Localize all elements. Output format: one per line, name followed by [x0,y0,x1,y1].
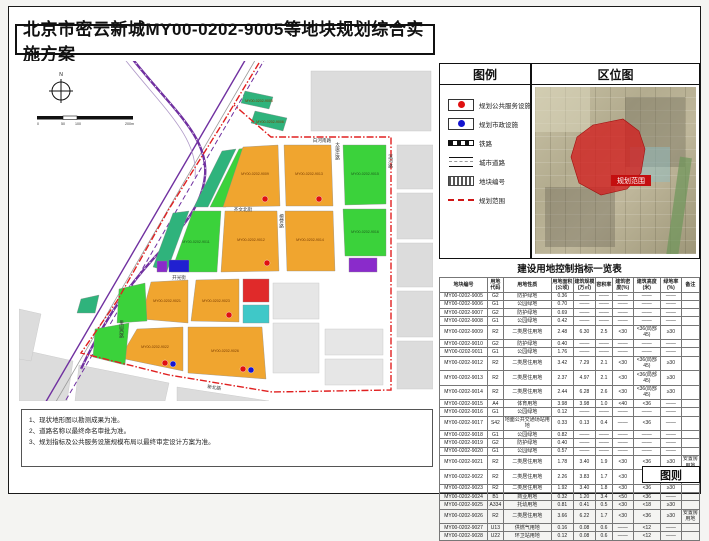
table-cell: —— [660,300,681,308]
table-cell: —— [612,292,633,300]
table-cell [681,317,699,325]
public-service-dot [316,196,322,202]
table-cell: 1.8 [595,484,612,492]
table-cell: <18 [633,501,660,509]
table-cell: 1.92 [551,484,573,492]
table-cell [681,524,699,532]
scale-tick: 100 [75,122,81,126]
table-cell: MY00-0202-9018 [440,431,488,439]
table-cell: —— [595,447,612,455]
table-cell [681,439,699,447]
table-cell: 0.36 [551,292,573,300]
table-cell: G2 [488,439,504,447]
table-row: MY00-0202-9010G2防护绿地0.40—————————— [440,340,700,348]
table-row: MY00-0202-9013R2二类居住用地2.374.972.1<30<36(… [440,371,700,386]
table-cell: 地面公共交通场站用地 [503,416,551,431]
table-cell: —— [595,300,612,308]
legend-item: 地块编号 [448,171,524,190]
plot-9025 [243,305,269,323]
table-cell: 0.70 [551,300,573,308]
table-cell: 0.33 [551,416,573,431]
public-service-dot [262,196,268,202]
table-cell: 0.40 [551,439,573,447]
table-cell: —— [633,439,660,447]
legend-item-label: 规划范围 [479,195,505,205]
table-cell: 0.40 [551,340,573,348]
table-row: MY00-0202-9009R2二类居住用地2.486.302.5<30<36(… [440,325,700,340]
table-cell: ≥30 [660,385,681,400]
table-cell: —— [573,348,595,356]
plot-label: MY00-0202-9026 [211,349,239,353]
table-cell [681,408,699,416]
compass-n-label: N [59,72,63,78]
table-cell: 0.08 [573,524,595,532]
public-service-dot [264,260,270,266]
table-cell: —— [612,431,633,439]
table-cell: —— [612,408,633,416]
legend-item: 规划市政设施 [448,114,524,133]
table-cell: —— [633,408,660,416]
table-cell: MY00-0202-9014 [440,385,488,400]
table-cell: MY00-0202-9022 [440,470,488,485]
table-cell: —— [633,309,660,317]
table-cell: —— [573,340,595,348]
table-cell: MY00-0202-9006 [440,300,488,308]
table-cell: 2.26 [551,470,573,485]
table-cell: 1.9 [595,455,612,470]
table-cell: ≥30 [660,371,681,386]
table-cell: —— [660,340,681,348]
table-cell: G2 [488,340,504,348]
table-cell: 公园绿地 [503,348,551,356]
planning-map-svg: MY00-0202-9005 MY00-0202-9006 MY00-0202-… [19,61,433,401]
indicator-table-body: MY00-0202-9005G2防护绿地0.36——————————MY00-0… [440,292,700,540]
table-cell: 二类居住用地 [503,484,551,492]
road-label: 齐文北街 [234,206,253,213]
plot-label: MY00-0202-9005 [245,99,273,103]
table-cell: 防护绿地 [503,309,551,317]
table-cell [681,309,699,317]
table-cell: <30 [612,509,633,524]
table-cell: —— [633,317,660,325]
legend-item-label: 地块编号 [479,176,505,186]
plot-label: MY00-0202-9023 [202,299,230,303]
table-cell: ≥30 [660,484,681,492]
table-cell: <30 [612,385,633,400]
legend-item: 铁路 [448,133,524,152]
plan-sheet: 北京市密云新城MY00-0202-9005等地块规划综合实施方案 [8,6,701,494]
plot-label: MY00-0202-9016 [351,230,379,234]
table-row: MY00-0202-9012R2二类居住用地3.427.292.1<30<36(… [440,356,700,371]
plot-9026 [188,327,266,379]
table-cell: 二类居住用地 [503,509,551,524]
table-cell: MY00-0202-9012 [440,356,488,371]
table-cell: 3.98 [573,400,595,408]
table-cell: 3.40 [573,484,595,492]
table-cell: ≥30 [660,509,681,524]
table-row: MY00-0202-9008G1公园绿地0.42—————————— [440,317,700,325]
table-cell [681,371,699,386]
city-road-icon [448,157,474,167]
table-cell: MY00-0202-9016 [440,408,488,416]
table-cell: —— [660,416,681,431]
table-cell: 3.98 [551,400,573,408]
table-cell: <30 [612,484,633,492]
table-cell: 1.7 [595,509,612,524]
plot-label: MY00-0202-9015 [351,172,379,176]
table-cell: R2 [488,356,504,371]
table-cell: —— [595,431,612,439]
indicator-table-header-row: 地块编号用地代码用地性质用地面积(公顷)建筑规模(万㎡)容积率建筑密度(%)建筑… [440,278,700,293]
table-cell: 3.40 [573,455,595,470]
table-cell: 2.48 [551,325,573,340]
table-cell: MY00-0202-9023 [440,484,488,492]
table-cell: 0.5 [595,501,612,509]
table-header-cell: 备注 [681,278,699,293]
plot-label: MY00-0202-9022 [141,345,169,349]
table-cell: MY00-0202-9026 [440,509,488,524]
table-cell: —— [595,348,612,356]
table-cell: 3.66 [551,509,573,524]
table-row: MY00-0202-9014R2二类居住用地2.446.282.6<30<36(… [440,385,700,400]
table-header-cell: 地块编号 [440,278,488,293]
table-cell: 二类居住用地 [503,356,551,371]
table-row: MY00-0202-9011G1公园绿地1.76—————————— [440,348,700,356]
legend-item: 城市道路 [448,152,524,171]
sheet-corner-label: 图则 [660,467,682,483]
table-cell: A4 [488,400,504,408]
table-cell [681,340,699,348]
table-cell: 0.08 [573,532,595,540]
legend-item: 规划公共服务设施 [448,95,524,114]
plot-9027 [169,260,189,272]
table-cell: —— [633,340,660,348]
table-cell [681,416,699,431]
table-row: MY00-0202-9017S42地面公共交通场站用地0.330.130.4——… [440,416,700,431]
table-cell: —— [573,408,595,416]
notes-box: 1、现状地形图以勘测成果为准。 2、道路名称以最终命名审批为准。 3、规划指标及… [21,409,433,467]
table-header-cell: 建筑密度(%) [612,278,633,293]
table-cell: ≥30 [660,325,681,340]
table-cell: 0.41 [573,501,595,509]
table-cell: —— [633,431,660,439]
table-cell: —— [573,431,595,439]
table-cell: MY00-0202-9007 [440,309,488,317]
table-cell: 1.0 [595,400,612,408]
scale-tick: 200m [125,122,134,126]
railway-icon [448,140,474,146]
road-label: 白河南路 [313,137,332,144]
table-header-cell: 容积率 [595,278,612,293]
table-cell: MY00-0202-9015 [440,400,488,408]
table-cell: 2.1 [595,356,612,371]
table-cell: —— [595,439,612,447]
table-cell: —— [573,309,595,317]
table-cell: <36(局部45) [633,325,660,340]
table-cell [681,300,699,308]
table-cell: 1.76 [551,348,573,356]
table-cell: G1 [488,447,504,455]
table-cell: MY00-0202-9025 [440,501,488,509]
page-title: 北京市密云新城MY00-0202-9005等地块规划综合实施方案 [23,15,433,65]
table-header-cell: 绿地率(%) [660,278,681,293]
note-line: 2、道路名称以最终命名审批为准。 [29,426,425,437]
table-cell: —— [660,447,681,455]
table-cell: 6.28 [573,385,595,400]
scale-tick: 50 [61,122,65,126]
table-cell: 6.30 [573,325,595,340]
table-cell: 6.22 [573,509,595,524]
table-cell [681,431,699,439]
table-cell: 公园绿地 [503,408,551,416]
table-cell: 安置房用地 [681,509,699,524]
table-cell: G2 [488,292,504,300]
table-cell: —— [612,416,633,431]
plot-label: MY00-0202-9013 [295,172,323,176]
table-cell: 7.29 [573,356,595,371]
table-cell: 2.5 [595,325,612,340]
table-cell: <36(局部45) [633,371,660,386]
location-satellite-map: 规划范围 [535,87,696,254]
table-cell: MY00-0202-9010 [440,340,488,348]
plot-9020 [117,283,147,323]
municipal-dot [248,367,254,373]
table-row: MY00-0202-9005G2防护绿地0.36—————————— [440,292,700,300]
table-cell: 2.37 [551,371,573,386]
table-cell: <36 [633,400,660,408]
table-cell: 2.6 [595,385,612,400]
road-label: 大唐庄路 [335,141,341,162]
table-cell: MY00-0202-9027 [440,524,488,532]
location-panel: 区位图 规划范围 [531,63,700,259]
table-cell: G1 [488,300,504,308]
table-cell: 4.97 [573,371,595,386]
public-service-dot [226,312,232,318]
table-cell: —— [612,524,633,532]
scale-bar: 0 50 100 200m [37,116,134,126]
table-row: MY00-0202-9018G1公园绿地0.82—————————— [440,431,700,439]
table-cell: 供燃气用地 [503,524,551,532]
table-header-cell: 建筑高度(米) [633,278,660,293]
table-cell: —— [595,309,612,317]
table-cell: 0.4 [595,416,612,431]
table-row: MY00-0202-9019G2防护绿地0.40—————————— [440,439,700,447]
table-cell: 1.7 [595,470,612,485]
table-cell: —— [660,439,681,447]
table-cell: 防护绿地 [503,340,551,348]
table-cell [681,348,699,356]
location-overlay: 规划范围 [535,87,696,254]
plot-9024 [243,279,269,302]
sheet-corner-box: 图则 [642,466,700,483]
table-cell: 体育用地 [503,400,551,408]
plot-label: MY00-0202-9009 [241,172,269,176]
legend-panel: 图例 规划公共服务设施 规划市政设施 铁路 城市道路 地块编号 [439,63,531,259]
table-row: MY00-0202-9016G1公园绿地0.12—————————— [440,408,700,416]
table-cell: —— [573,439,595,447]
table-cell: —— [595,292,612,300]
table-cell: G1 [488,431,504,439]
public-service-dot [240,366,246,372]
table-cell: R2 [488,470,504,485]
table-cell: 公园绿地 [503,300,551,308]
table-cell [681,400,699,408]
plot-9019 [77,295,99,313]
table-cell: R2 [488,484,504,492]
table-cell: G2 [488,309,504,317]
table-cell: <30 [612,371,633,386]
indicator-table-title: 建设用地控制指标一览表 [439,259,700,277]
plot-9028 [157,261,167,272]
range-label: 规划范围 [617,176,645,185]
table-cell: <12 [633,524,660,532]
table-cell: 托幼用地 [503,501,551,509]
plot-9017 [349,258,377,272]
table-cell: MY00-0202-9020 [440,447,488,455]
table-cell [681,292,699,300]
legend-item: 规划范围 [448,190,524,209]
table-cell: 1.78 [551,455,573,470]
road-label: 滨河路 [388,153,394,169]
table-cell: —— [660,292,681,300]
table-cell: —— [595,340,612,348]
table-cell: MY00-0202-9021 [440,455,488,470]
table-cell: —— [612,348,633,356]
table-cell: —— [612,309,633,317]
table-cell: R2 [488,385,504,400]
table-cell: MY00-0202-9019 [440,439,488,447]
table-cell: 2.1 [595,371,612,386]
table-cell: 二类居住用地 [503,455,551,470]
table-cell [681,325,699,340]
planning-map: MY00-0202-9005 MY00-0202-9006 MY00-0202-… [19,61,433,401]
table-cell: G1 [488,317,504,325]
table-cell: MY00-0202-9028 [440,532,488,540]
table-cell: 0.12 [551,408,573,416]
table-cell: —— [612,340,633,348]
table-cell: 0.42 [551,317,573,325]
table-cell: 二类居住用地 [503,470,551,485]
note-line: 1、现状地形图以勘测成果为准。 [29,415,425,426]
table-cell: 0.13 [573,416,595,431]
table-cell: 公园绿地 [503,447,551,455]
table-row: MY00-0202-9006G1公园绿地0.70—————————— [440,300,700,308]
table-cell: MY00-0202-9005 [440,292,488,300]
table-cell: 0.81 [551,501,573,509]
table-cell: R2 [488,371,504,386]
table-cell: <30 [612,325,633,340]
table-cell: —— [612,317,633,325]
table-row: MY00-0202-9025A334托幼用地0.810.410.5<30<18≥… [440,501,700,509]
table-header-cell: 用地代码 [488,278,504,293]
table-cell: 0.12 [551,532,573,540]
north-compass: N [49,72,73,103]
table-cell [681,447,699,455]
table-cell: —— [573,292,595,300]
plot-label: MY00-0202-9012 [237,238,265,242]
plot-label: MY00-0202-9011 [182,240,210,244]
table-cell: R2 [488,325,504,340]
scale-tick: 0 [37,122,39,126]
table-cell: U22 [488,532,504,540]
road-label: 檀营路 [279,213,285,229]
table-cell: A334 [488,501,504,509]
table-cell: —— [660,524,681,532]
public-service-icon [448,99,474,111]
table-cell: —— [573,447,595,455]
table-cell: —— [660,348,681,356]
table-cell: ≥30 [660,356,681,371]
table-cell: —— [612,439,633,447]
table-cell: —— [633,292,660,300]
road-label: 开光街 [172,274,186,281]
table-cell: 0.16 [551,524,573,532]
table-cell: —— [660,431,681,439]
table-cell: <30 [612,470,633,485]
table-row: MY00-0202-9020G1公园绿地0.57—————————— [440,447,700,455]
legend-item-label: 规划公共服务设施 [479,100,531,110]
table-cell: <36 [633,509,660,524]
table-cell: MY00-0202-9008 [440,317,488,325]
road-label: 新北路 [207,383,222,392]
table-cell: —— [660,400,681,408]
table-cell: —— [573,300,595,308]
note-line: 3、规划指标及公共服务设施规模布局以最终审定设计方案为准。 [29,437,425,448]
table-cell: U13 [488,524,504,532]
table-cell [681,385,699,400]
table-row: MY00-0202-9015A4体育用地3.983.981.0<40<36—— [440,400,700,408]
table-cell: —— [660,317,681,325]
table-cell: 0.6 [595,524,612,532]
table-cell: 公园绿地 [503,317,551,325]
table-cell: —— [660,408,681,416]
plot-number-icon [448,176,474,186]
municipal-facility-icon [448,118,474,130]
table-cell: ≥30 [660,501,681,509]
road-label: 果园西路 [119,320,125,340]
table-cell: <36 [633,484,660,492]
table-cell: G1 [488,408,504,416]
plot-label: MY00-0202-9006 [256,120,284,124]
table-cell: <12 [633,532,660,540]
table-cell: <40 [612,400,633,408]
legend-item-label: 铁路 [479,138,492,148]
table-cell: R2 [488,455,504,470]
table-cell: 环卫站用地 [503,532,551,540]
planning-range-icon [448,199,474,201]
table-cell: MY00-0202-9013 [440,371,488,386]
legend-item-label: 规划市政设施 [479,119,518,129]
table-cell: 3.83 [573,470,595,485]
legend-item-label: 城市道路 [479,157,505,167]
table-cell: 2.44 [551,385,573,400]
table-cell: R2 [488,509,504,524]
table-cell [681,484,699,492]
indicator-table-panel: 建设用地控制指标一览表 地块编号用地代码用地性质用地面积(公顷)建筑规模(万㎡)… [439,259,700,483]
table-cell [681,356,699,371]
table-cell: 3.42 [551,356,573,371]
table-cell: MY00-0202-9011 [440,348,488,356]
table-cell: 0.82 [551,431,573,439]
table-cell: <30 [612,356,633,371]
location-title: 区位图 [532,64,699,85]
table-header-cell: 建筑规模(万㎡) [573,278,595,293]
table-cell: —— [612,532,633,540]
table-cell: 二类居住用地 [503,325,551,340]
indicator-table: 地块编号用地代码用地性质用地面积(公顷)建筑规模(万㎡)容积率建筑密度(%)建筑… [439,277,700,541]
municipal-dot [170,361,176,367]
table-cell: —— [660,309,681,317]
